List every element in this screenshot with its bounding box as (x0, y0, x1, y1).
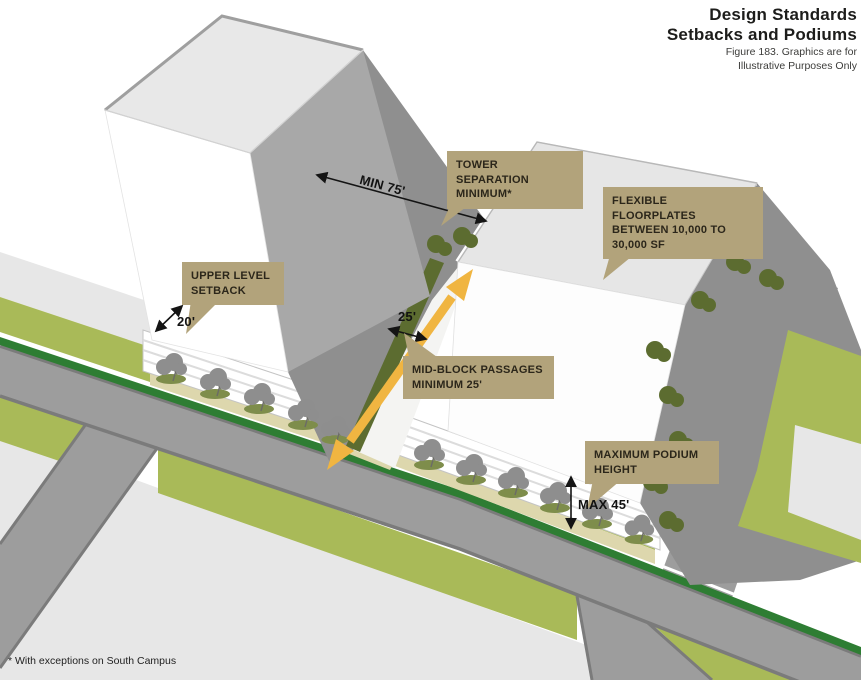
footnote: * With exceptions on South Campus (8, 655, 176, 667)
page-title-line2: Setbacks and Podiums (667, 25, 857, 45)
callout-upper-level-setback: UPPER LEVEL SETBACK (182, 262, 284, 305)
figure-caption-line1: Figure 183. Graphics are for (667, 46, 857, 58)
dim-label-max-45: MAX 45' (578, 497, 629, 512)
figure-caption-line2: Illustrative Purposes Only (667, 60, 857, 72)
title-block: Design Standards Setbacks and Podiums Fi… (667, 5, 857, 72)
scene-illustration (0, 0, 861, 680)
dim-label-25ft: 25' (398, 309, 416, 324)
figure-root: Design Standards Setbacks and Podiums Fi… (0, 0, 861, 680)
callout-maximum-podium-height: MAXIMUM PODIUM HEIGHT (585, 441, 719, 484)
callout-tower-separation: TOWER SEPARATION MINIMUM* (447, 151, 583, 209)
page-title-line1: Design Standards (667, 5, 857, 25)
dim-label-20ft: 20' (177, 314, 195, 329)
callout-mid-block-passages: MID-BLOCK PASSAGES MINIMUM 25' (403, 356, 554, 399)
callout-flexible-floorplates: FLEXIBLE FLOORPLATES BETWEEN 10,000 TO 3… (603, 187, 763, 259)
left-tower (105, 16, 430, 372)
